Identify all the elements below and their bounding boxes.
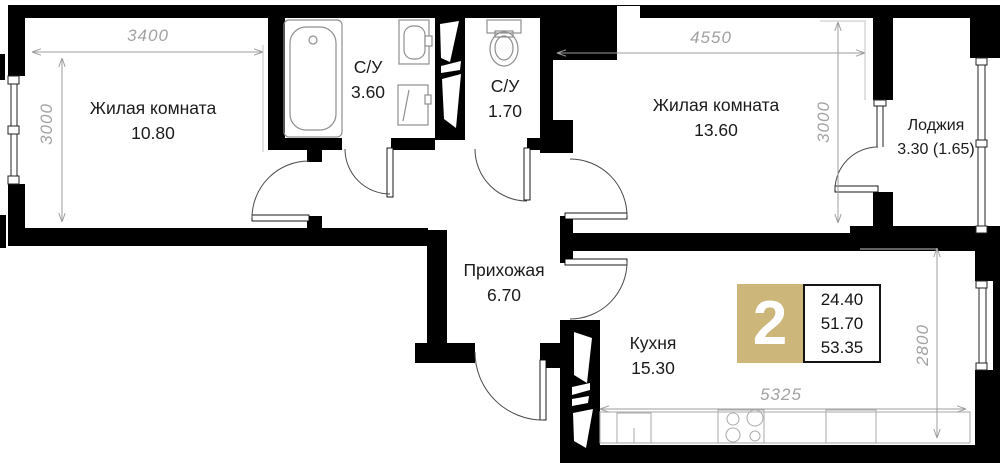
stove-icon bbox=[718, 410, 764, 443]
dim-label-5325: 5325 bbox=[760, 385, 802, 405]
top-wall-notch bbox=[617, 6, 640, 18]
wall-segment bbox=[560, 233, 1000, 251]
door-leaf-loggia bbox=[835, 186, 878, 192]
room-name: С/У bbox=[351, 55, 385, 80]
room-area: 15.30 bbox=[630, 356, 677, 381]
wall-segment bbox=[975, 370, 1000, 463]
door-arc-living2 bbox=[570, 159, 627, 216]
room-label-kitchen: Кухня 15.30 bbox=[630, 331, 677, 381]
room-name: Кухня bbox=[630, 331, 677, 356]
window-loggia-glazing bbox=[976, 58, 987, 233]
wall-segment bbox=[970, 5, 1000, 58]
room-area: 1.70 bbox=[488, 99, 522, 124]
fixtures bbox=[284, 20, 521, 137]
room-label-loggia: Лоджия 3.30 (1.65) bbox=[897, 114, 974, 162]
floor-plan-drawing bbox=[0, 0, 1000, 463]
wall-segment bbox=[391, 138, 435, 150]
room-name: Лоджия bbox=[897, 114, 974, 138]
door-leaf-living1 bbox=[252, 215, 309, 221]
room-area: 3.60 bbox=[351, 80, 385, 105]
room-area: 13.60 bbox=[653, 118, 779, 143]
door-leaf-bath1 bbox=[387, 148, 393, 197]
vent-shaft-bathrooms bbox=[435, 18, 465, 140]
dim-label-4550: 4550 bbox=[690, 28, 732, 48]
door-arc-kitchen bbox=[570, 262, 627, 319]
kitchen-counter bbox=[600, 412, 970, 443]
door-arc-bath1 bbox=[345, 149, 390, 194]
vent-shaft-kitchen bbox=[560, 320, 600, 463]
wall-segment bbox=[975, 251, 1000, 281]
wall-segment bbox=[0, 54, 5, 80]
room-label-living1: Жилая комната 10.80 bbox=[90, 96, 216, 146]
room-label-living2: Жилая комната 13.60 bbox=[653, 93, 779, 143]
wall-segment bbox=[0, 215, 6, 248]
wall-segment bbox=[993, 277, 1000, 373]
kitchen-fixtures bbox=[600, 410, 970, 443]
room-name: Жилая комната bbox=[653, 93, 779, 118]
wall-segment bbox=[8, 5, 1000, 18]
room-label-bath1: С/У 3.60 bbox=[351, 55, 385, 105]
room-area: 3.30 (1.65) bbox=[897, 138, 974, 162]
window-kitchen bbox=[976, 281, 987, 370]
room-area: 6.70 bbox=[463, 283, 544, 308]
door-leaf-entry bbox=[540, 360, 546, 420]
wall-segment bbox=[873, 192, 893, 233]
door-arc-loggia bbox=[835, 147, 878, 189]
wall-segment bbox=[427, 230, 447, 345]
wall-segment bbox=[8, 18, 25, 76]
dim-line-5325 bbox=[600, 406, 966, 412]
area-total-value: 53.35 bbox=[821, 336, 864, 360]
window-loggia-inner bbox=[874, 100, 886, 147]
dim-label-2800: 2800 bbox=[913, 324, 933, 366]
toilet-icon bbox=[487, 20, 521, 66]
wall-segment bbox=[415, 343, 475, 363]
washing-machine-icon bbox=[398, 85, 431, 125]
kitchen-cabinet bbox=[826, 410, 876, 443]
room-name: Жилая комната bbox=[90, 96, 216, 121]
door-arc-bath2 bbox=[475, 149, 527, 201]
room-name: С/У bbox=[488, 74, 522, 99]
door-leaf-bath2 bbox=[524, 148, 530, 200]
dim-line-3000-left bbox=[59, 58, 65, 222]
washbasin-icon bbox=[399, 20, 432, 64]
floor-plan: Жилая комната 10.80 С/У 3.60 С/У 1.70 Жи… bbox=[0, 0, 1000, 463]
dim-line-3400 bbox=[32, 49, 263, 55]
wall-segment bbox=[552, 18, 617, 60]
room-area: 10.80 bbox=[90, 121, 216, 146]
wall-segment bbox=[268, 18, 285, 138]
rooms-count-badge: 2 bbox=[737, 284, 803, 363]
door-leaf-living2 bbox=[565, 213, 627, 219]
kitchen-sink-icon bbox=[617, 413, 651, 443]
wall-segment bbox=[540, 120, 573, 153]
wall-segment bbox=[873, 18, 893, 100]
area-main-value: 51.70 bbox=[821, 312, 864, 336]
wall-segment bbox=[597, 445, 1000, 463]
room-name: Прихожая bbox=[463, 258, 544, 283]
door-leaf-kitchen bbox=[565, 259, 627, 265]
dim-label-3400: 3400 bbox=[127, 26, 169, 46]
dim-label-3000-left: 3000 bbox=[37, 103, 57, 145]
apartment-badge: 2 24.40 51.70 53.35 bbox=[737, 284, 881, 363]
wall-segment bbox=[307, 150, 322, 162]
dim-label-3000-right: 3000 bbox=[814, 101, 834, 143]
door-arc-entry bbox=[475, 352, 543, 420]
room-label-hall: Прихожая 6.70 bbox=[463, 258, 544, 308]
badge-areas: 24.40 51.70 53.35 bbox=[803, 284, 881, 363]
room-label-bath2: С/У 1.70 bbox=[488, 74, 522, 124]
window-living1 bbox=[8, 76, 19, 184]
wall-segment bbox=[268, 138, 342, 150]
door-arc-living1 bbox=[252, 161, 309, 218]
dim-line-3000-right bbox=[835, 22, 841, 223]
wall-segment bbox=[8, 228, 428, 246]
area-living-value: 24.40 bbox=[821, 288, 864, 312]
bathtub-icon bbox=[284, 20, 342, 137]
